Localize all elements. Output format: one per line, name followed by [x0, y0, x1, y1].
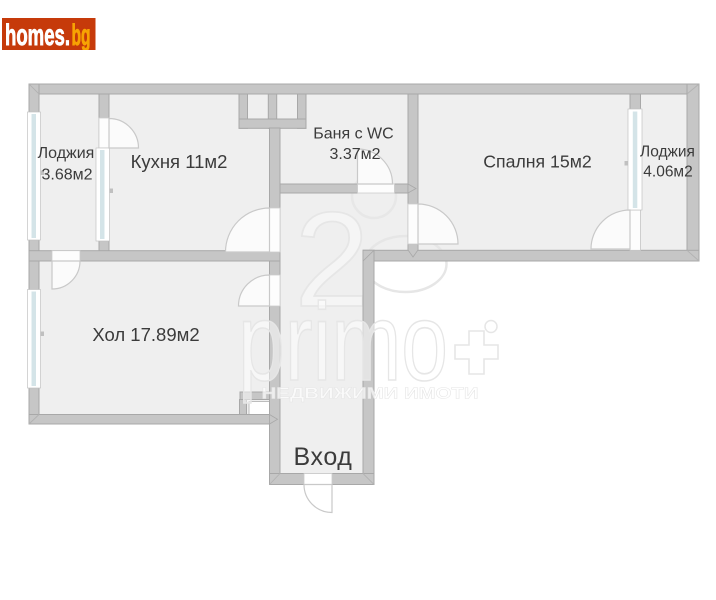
- svg-text:НЕДВИЖИМИ ИМОТИ: НЕДВИЖИМИ ИМОТИ: [262, 386, 479, 403]
- svg-text:Лоджия: Лоджия: [640, 144, 695, 161]
- svg-text:Баня с WC: Баня с WC: [313, 126, 393, 143]
- svg-text:3.68м2: 3.68м2: [41, 167, 92, 184]
- svg-text:bg: bg: [72, 19, 91, 52]
- svg-text:Кухня 11м2: Кухня 11м2: [131, 151, 228, 172]
- svg-text:4.06м2: 4.06м2: [643, 164, 692, 181]
- svg-text:Спалня 15м2: Спалня 15м2: [483, 152, 591, 172]
- svg-text:Хол 17.89м2: Хол 17.89м2: [92, 324, 199, 345]
- svg-text:Вход: Вход: [294, 443, 353, 471]
- svg-text:3.37м2: 3.37м2: [329, 146, 380, 163]
- svg-text:Лоджия: Лоджия: [38, 145, 95, 162]
- svg-text:homes.: homes.: [5, 19, 70, 52]
